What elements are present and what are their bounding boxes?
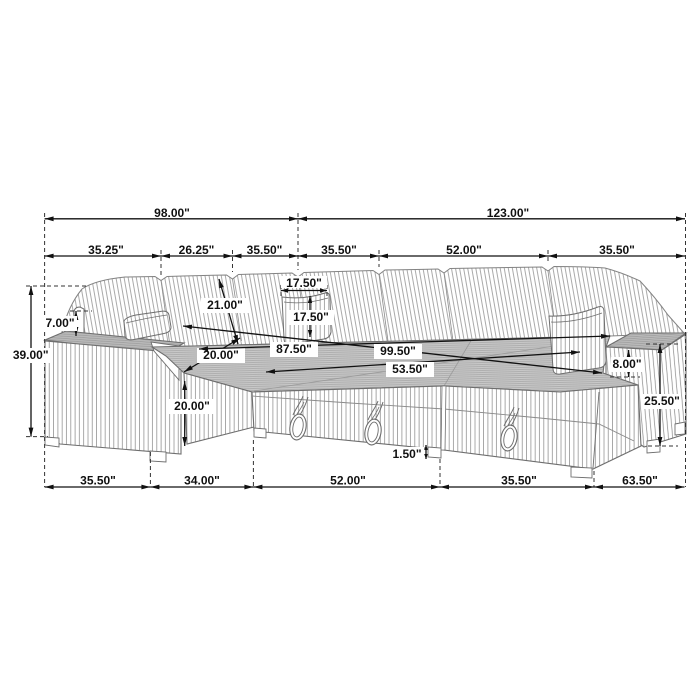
- svg-text:63.50": 63.50": [622, 474, 658, 488]
- svg-text:98.00": 98.00": [154, 206, 190, 220]
- svg-text:52.00": 52.00": [330, 474, 366, 488]
- svg-text:26.25": 26.25": [179, 243, 215, 257]
- svg-text:25.50": 25.50": [644, 394, 680, 408]
- svg-text:123.00": 123.00": [487, 206, 529, 220]
- svg-text:20.00": 20.00": [174, 399, 210, 413]
- svg-text:17.50": 17.50": [286, 276, 322, 290]
- svg-text:35.50": 35.50": [501, 474, 537, 488]
- svg-text:39.00": 39.00": [13, 348, 49, 362]
- svg-text:20.00": 20.00": [203, 348, 239, 362]
- svg-text:17.50": 17.50": [293, 310, 329, 324]
- svg-text:35.25": 35.25": [88, 243, 124, 257]
- svg-text:35.50": 35.50": [599, 243, 635, 257]
- svg-text:99.50": 99.50": [380, 344, 416, 358]
- svg-text:8.00": 8.00": [612, 357, 641, 371]
- svg-text:35.50": 35.50": [80, 474, 116, 488]
- svg-text:53.50": 53.50": [392, 362, 428, 376]
- svg-text:52.00": 52.00": [446, 243, 482, 257]
- svg-text:7.00": 7.00": [45, 316, 74, 330]
- svg-text:35.50": 35.50": [321, 243, 357, 257]
- svg-text:1.50": 1.50": [392, 447, 421, 461]
- svg-text:35.50": 35.50": [247, 243, 283, 257]
- svg-text:21.00": 21.00": [207, 298, 243, 312]
- svg-text:34.00": 34.00": [184, 474, 220, 488]
- svg-text:87.50": 87.50": [276, 342, 312, 356]
